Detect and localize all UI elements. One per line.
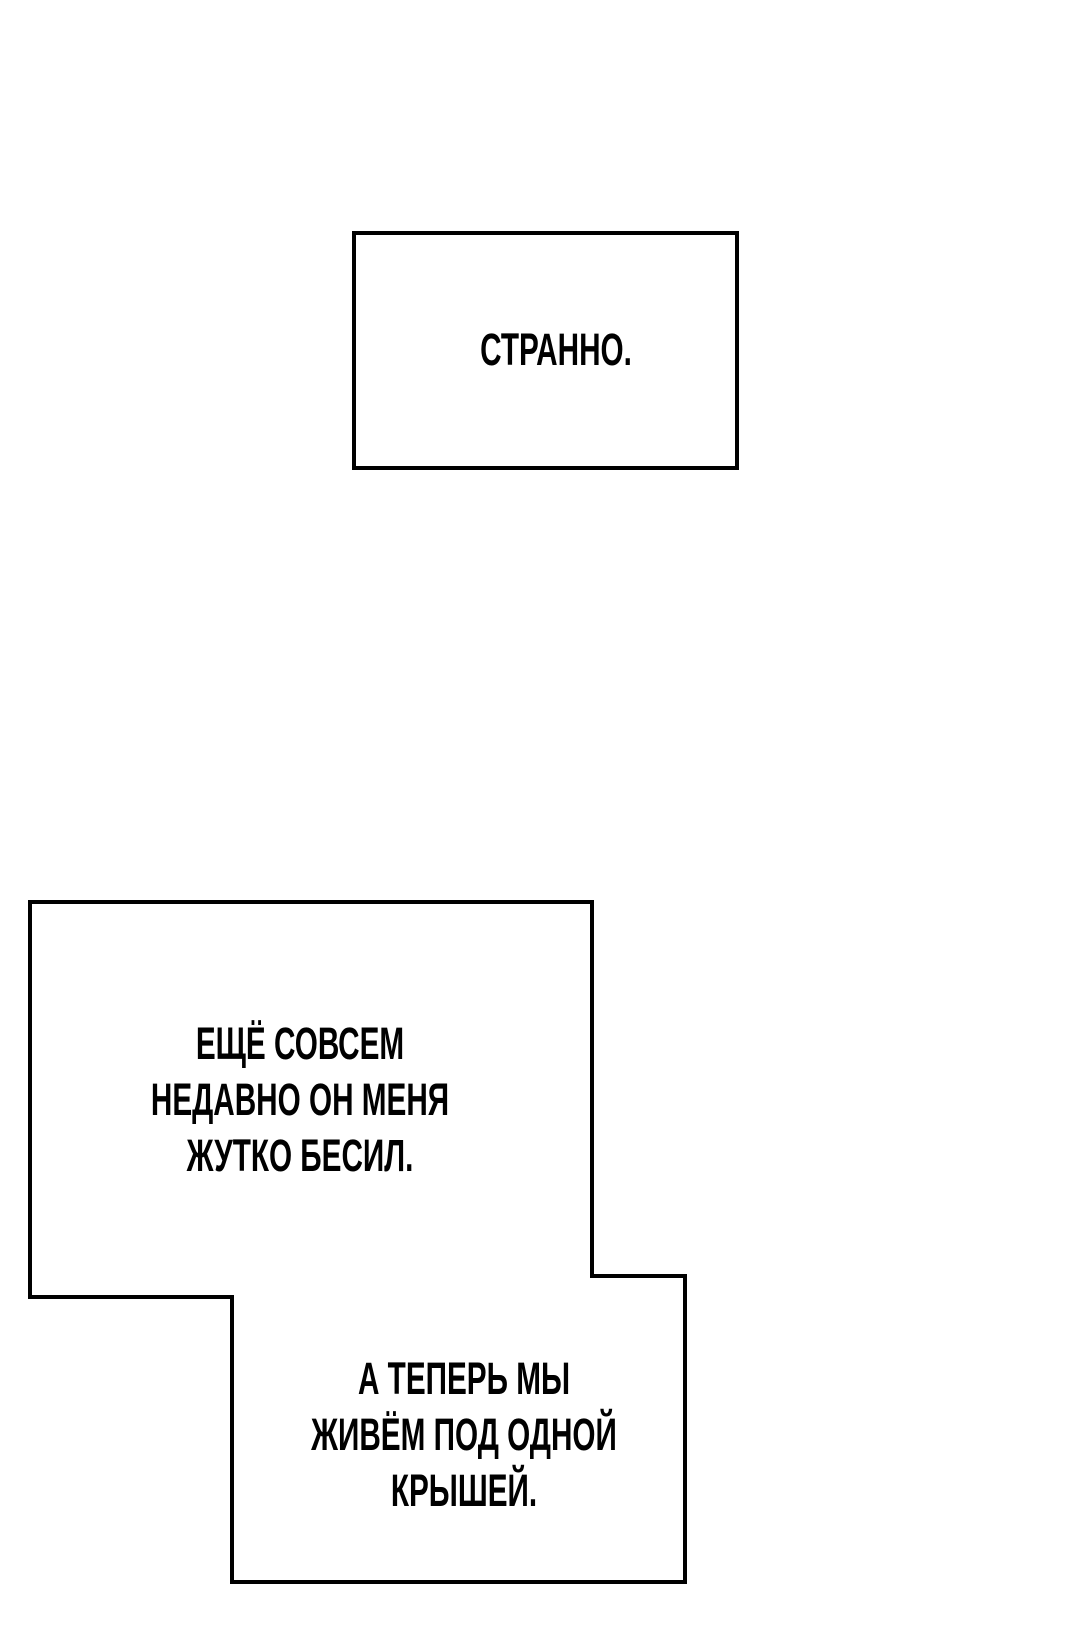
comic-page: СТРАННО. ЕЩЁ СОВСЕМ НЕДАВНО ОН МЕНЯ ЖУТК… [0,0,1080,1646]
narration-text-same-roof: А ТЕПЕРЬ МЫ ЖИВЁМ ПОД ОДНОЙ КРЫШЕЙ. [311,1351,617,1519]
narration-text-recently: ЕЩЁ СОВСЕМ НЕДАВНО ОН МЕНЯ ЖУТКО БЕСИЛ. [151,1016,449,1184]
narration-text-strange: СТРАННО. [480,322,632,378]
